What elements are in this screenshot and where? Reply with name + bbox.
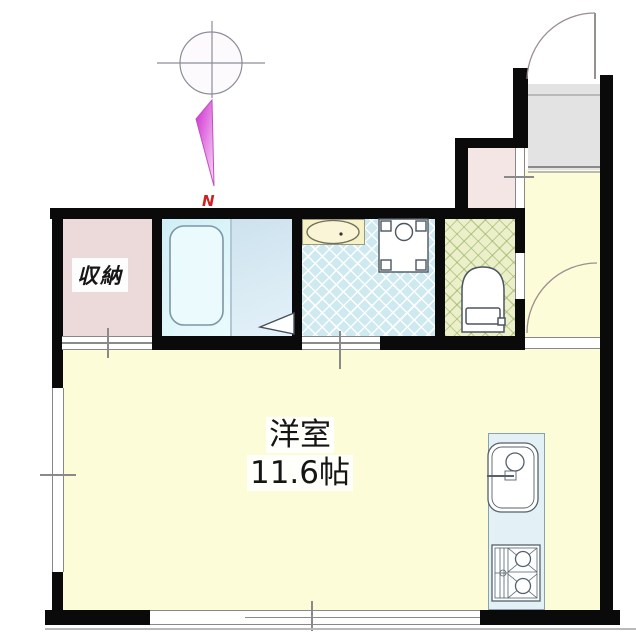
- sliding-door-storage-tick: [107, 328, 109, 358]
- dressing-room-floor: [230, 219, 292, 336]
- main-room-name: 洋室: [266, 417, 334, 453]
- north-arrow-icon: [196, 100, 214, 186]
- sliding-door-closet-tick: [504, 176, 534, 178]
- window-symbol-left: [52, 388, 64, 572]
- plan-bottom-shadow-line: [45, 628, 636, 630]
- sliding-door-closet: [515, 148, 525, 208]
- toilet-room-floor: [445, 217, 515, 336]
- wall-entrance-left: [513, 68, 528, 148]
- wall-bottom-right: [480, 610, 620, 625]
- entrance-floor: [528, 84, 600, 170]
- entrance-closet-floor: [468, 148, 515, 208]
- window-tick-left: [40, 474, 76, 476]
- doorway-hallway-mainroom: [525, 337, 600, 349]
- wall-toilet-right-top: [515, 217, 525, 253]
- wall-mid-b: [380, 336, 525, 350]
- entrance-step-line-lower: [528, 166, 600, 168]
- wall-bottom-left: [45, 610, 150, 625]
- toilet-door: [515, 253, 525, 299]
- entrance-step-line-upper: [528, 94, 600, 96]
- washbasin-counter: [302, 219, 365, 245]
- storage-room-label: 収納: [72, 258, 128, 292]
- kitchen-counter: [488, 433, 545, 610]
- wall-right: [600, 75, 613, 625]
- entrance-step-line-lower2: [528, 171, 600, 173]
- wall-top: [50, 208, 525, 219]
- hallway-floor: [525, 170, 600, 337]
- entrance-door-arc: [527, 13, 595, 79]
- bathroom-floor: [162, 219, 230, 336]
- wall-left-upper: [52, 208, 63, 388]
- wall-storage-bath: [152, 219, 162, 336]
- wall-closet-left: [455, 138, 468, 208]
- wall-toilet-right-bottom: [515, 298, 525, 336]
- sliding-door-washroom: [302, 336, 380, 350]
- main-room-size: 11.6帖: [247, 455, 353, 491]
- window-tick-bottom: [311, 601, 313, 631]
- wall-mid-a: [152, 336, 302, 350]
- floor-plan: 収納 洋室 11.6帖 N: [0, 0, 636, 640]
- wall-dressing-washroom: [292, 219, 302, 336]
- wall-washroom-toilet: [435, 217, 445, 336]
- north-label: N: [202, 192, 215, 210]
- window-symbol-bottom: [150, 610, 480, 625]
- compass-icon: [157, 21, 265, 98]
- sliding-door-washroom-tick: [339, 331, 341, 369]
- main-room-label: 洋室 11.6帖: [210, 416, 390, 492]
